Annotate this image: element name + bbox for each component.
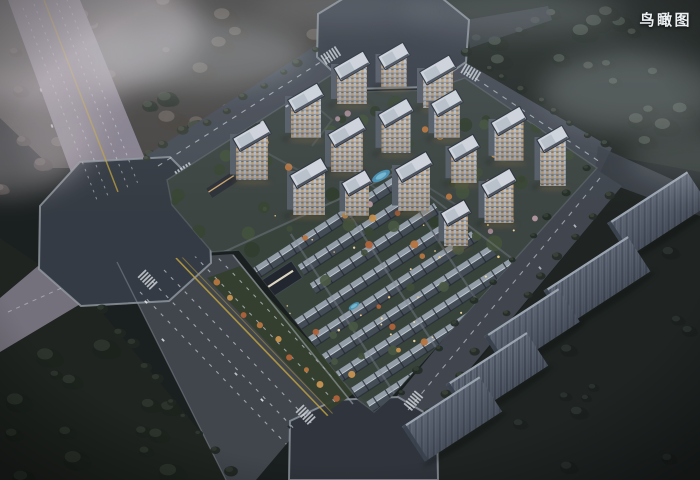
atmosphere-layer <box>0 0 700 480</box>
render-canvas <box>0 0 700 480</box>
aerial-render-image: 鸟瞰图 <box>0 0 700 480</box>
view-label: 鸟瞰图 <box>639 9 692 30</box>
